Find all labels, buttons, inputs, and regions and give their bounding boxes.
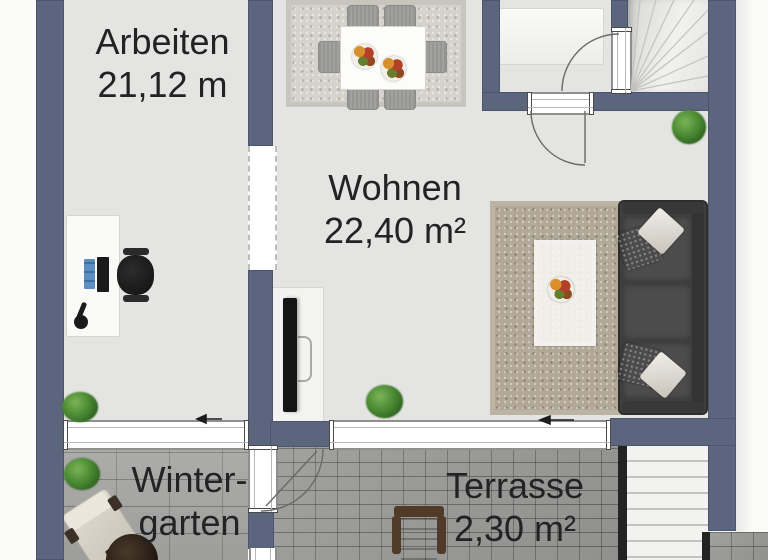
door-jamb <box>527 92 532 115</box>
room-label-wintergarten: Winter- garten <box>112 458 267 544</box>
floorplan: Arbeiten 21,12 m Wohnen 22,40 m² Winter-… <box>0 0 768 560</box>
tv <box>283 298 297 412</box>
dining-chair <box>423 41 447 73</box>
room-name: Arbeiten <box>75 20 250 63</box>
room-label-arbeiten: Arbeiten 21,12 m <box>75 20 250 106</box>
chair-armrest <box>123 295 149 302</box>
window-wohnen <box>330 420 610 450</box>
door-jamb <box>611 89 632 94</box>
exterior-left <box>0 0 36 560</box>
chair-seat <box>117 255 154 295</box>
sofa <box>618 200 708 415</box>
steps-left-rail <box>618 446 627 560</box>
exterior-right <box>736 0 768 560</box>
desk-lamp <box>70 302 92 330</box>
sofa-cushion <box>622 284 692 340</box>
sofa-backrest <box>692 204 704 411</box>
tv-mount-bracket <box>298 336 312 382</box>
wall-middle-top <box>248 0 273 146</box>
window-jamb <box>606 420 611 450</box>
staircase-floor <box>627 0 708 93</box>
plant-icon <box>64 458 100 490</box>
plant-icon <box>672 110 706 144</box>
hall-cabinet <box>498 8 604 65</box>
door-hall-wohnen <box>528 92 593 115</box>
wall-middle-stub <box>270 421 330 447</box>
chair-armrest <box>123 248 149 255</box>
door-jamb <box>589 92 594 115</box>
wall-right <box>708 0 736 531</box>
room-label-terrasse: Terrasse 2,30 m² <box>425 464 605 550</box>
room-name: Terrasse <box>425 464 605 507</box>
door-jamb <box>611 27 632 32</box>
wall-hall-vertical <box>482 0 500 93</box>
door-jamb <box>248 445 278 450</box>
room-area: 2,30 m² <box>425 507 605 550</box>
window-jamb <box>63 420 68 450</box>
window-arbeiten <box>64 420 248 450</box>
plant-icon <box>366 385 403 418</box>
room-name: Winter- <box>112 458 267 501</box>
plant-icon <box>62 392 98 422</box>
room-area: 21,12 m <box>75 63 250 106</box>
lamp-base <box>74 315 88 329</box>
wall-opening <box>248 146 277 270</box>
door-hall-stairs <box>611 28 632 93</box>
fruit-bowl <box>352 44 377 69</box>
steps-right-rail <box>702 532 710 560</box>
fruit-bowl <box>381 56 406 81</box>
window-jamb <box>329 420 334 450</box>
wall-left <box>36 0 64 560</box>
room-name: Wohnen <box>300 166 490 209</box>
wall-hall-horizontal <box>482 92 736 111</box>
wall-corner-terrace <box>610 418 736 446</box>
fruit-bowl <box>548 277 574 302</box>
dining-chair <box>318 41 342 73</box>
room-area: 22,40 m² <box>300 209 490 252</box>
terrace-steps <box>618 446 710 560</box>
office-chair <box>113 246 157 304</box>
desk-monitor <box>97 257 109 292</box>
room-name: garten <box>112 501 267 544</box>
window-bottom-stub <box>249 548 277 560</box>
wooden-chair-arm <box>392 516 401 554</box>
sofa-armrest <box>622 401 704 413</box>
steps-treads <box>627 446 710 560</box>
desk-books <box>84 259 95 289</box>
room-label-wohnen: Wohnen 22,40 m² <box>300 166 490 252</box>
wall-stair-stub <box>611 0 628 29</box>
terrasse-floor-corner <box>710 532 768 560</box>
